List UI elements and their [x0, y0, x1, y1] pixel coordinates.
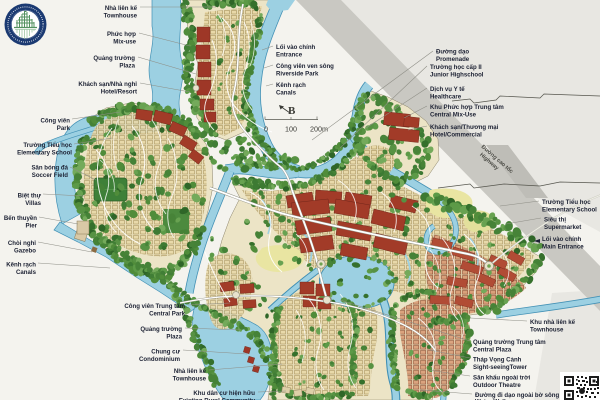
svg-text:Khu dân cư hiện hữu: Khu dân cư hiện hữu [193, 390, 255, 397]
svg-text:Kênh rạch: Kênh rạch [6, 262, 36, 269]
svg-text:Công viên: Công viên [41, 118, 71, 125]
svg-text:Canals: Canals [276, 90, 297, 97]
svg-text:Supermarket: Supermarket [544, 224, 581, 231]
svg-text:Junior Highschool: Junior Highschool [430, 72, 484, 79]
svg-text:200m: 200m [310, 125, 328, 134]
svg-text:Villas: Villas [25, 200, 41, 207]
svg-text:Sân khấu ngoài trời: Sân khấu ngoài trời [473, 375, 530, 382]
svg-text:Trường Tiểu học: Trường Tiểu học [23, 142, 72, 149]
svg-text:Khu nhà liên kế: Khu nhà liên kế [530, 319, 576, 326]
svg-text:Khu Phức hợp Trung tâm: Khu Phức hợp Trung tâm [430, 104, 504, 111]
svg-text:Condominium: Condominium [139, 356, 181, 363]
svg-text:Công viên ven sông: Công viên ven sông [276, 63, 334, 70]
svg-text:Central Mix-Use: Central Mix-Use [430, 112, 477, 119]
svg-text:Đường dạo: Đường dạo [436, 49, 469, 56]
svg-text:Quảng trường: Quảng trường [140, 326, 182, 333]
svg-text:Pier: Pier [25, 223, 37, 230]
svg-text:Lối vào chính: Lối vào chính [276, 44, 316, 51]
svg-text:Tháp Vọng Cảnh: Tháp Vọng Cảnh [473, 357, 522, 364]
svg-text:Phức hợp: Phức hợp [107, 31, 136, 38]
svg-text:Siêu thị: Siêu thị [544, 217, 566, 224]
svg-text:Trường Tiểu học: Trường Tiểu học [542, 199, 591, 206]
svg-text:Hotel/Commercial: Hotel/Commercial [430, 132, 482, 139]
svg-text:Central Park: Central Park [149, 311, 186, 318]
svg-text:Riverside Park: Riverside Park [276, 71, 319, 78]
svg-text:0: 0 [264, 125, 268, 134]
svg-text:Nhà liên kế: Nhà liên kế [105, 5, 138, 12]
svg-text:Sân bóng đá: Sân bóng đá [31, 165, 68, 172]
svg-text:Elementary School: Elementary School [542, 207, 597, 214]
svg-text:Trường học cấp II: Trường học cấp II [430, 64, 482, 71]
svg-text:Park: Park [57, 125, 71, 132]
svg-text:Elementary School: Elementary School [17, 150, 72, 157]
svg-text:Plaza: Plaza [166, 334, 182, 341]
svg-text:Công viên Trung tâm: Công viên Trung tâm [124, 303, 185, 310]
svg-text:Townhouse: Townhouse [530, 327, 564, 334]
svg-text:Plaza: Plaza [119, 63, 135, 70]
svg-text:Townhouse: Townhouse [173, 376, 207, 383]
svg-text:Mix-use: Mix-use [113, 39, 136, 46]
svg-text:Central Plaza: Central Plaza [473, 347, 512, 354]
svg-text:Main Entrance: Main Entrance [542, 244, 584, 251]
svg-text:Gazebo: Gazebo [14, 248, 36, 255]
svg-text:B: B [288, 105, 296, 117]
svg-text:Soccer Field: Soccer Field [32, 172, 69, 179]
svg-text:Nhà liên kế: Nhà liên kế [174, 368, 207, 375]
svg-text:Dịch vụ Y tế: Dịch vụ Y tế [430, 86, 465, 93]
svg-text:Khách sạn/Nhà nghỉ: Khách sạn/Nhà nghỉ [78, 81, 137, 88]
svg-text:Quảng trường Trung tâm: Quảng trường Trung tâm [473, 339, 546, 346]
svg-text:Canals: Canals [16, 269, 37, 276]
svg-text:Quảng trường: Quảng trường [93, 55, 135, 62]
svg-text:100: 100 [285, 125, 297, 134]
svg-text:Sight-seeingTower: Sight-seeingTower [473, 364, 528, 371]
svg-text:Chòi nghỉ: Chòi nghỉ [8, 240, 36, 247]
svg-text:Hotel/Resort: Hotel/Resort [101, 89, 137, 96]
svg-text:Chung cư: Chung cư [151, 349, 180, 356]
svg-text:Biệt thự: Biệt thự [18, 193, 42, 200]
svg-text:Bến thuyền: Bến thuyền [4, 215, 37, 222]
svg-text:Entrance: Entrance [276, 52, 303, 59]
svg-text:Kênh rạch: Kênh rạch [276, 82, 306, 89]
svg-text:Lối vào chính: Lối vào chính [542, 236, 582, 243]
svg-text:Healthcare: Healthcare [430, 94, 462, 101]
svg-text:Townhouse: Townhouse [104, 13, 138, 20]
svg-text:Outdoor Theatre: Outdoor Theatre [473, 382, 521, 389]
svg-text:Promenade: Promenade [436, 56, 470, 63]
svg-text:Khách sạn/Thương mại: Khách sạn/Thương mại [430, 124, 499, 131]
